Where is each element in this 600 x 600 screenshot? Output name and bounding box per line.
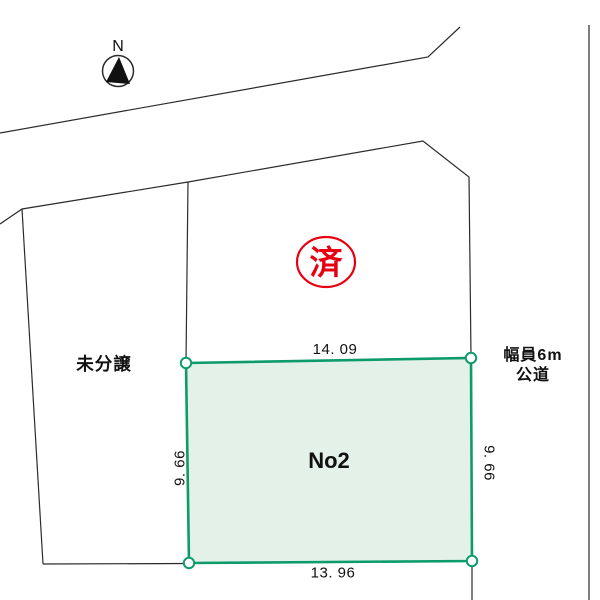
road-label: 幅員6m 公道 bbox=[503, 345, 562, 384]
plot-unsold-label: 未分譲 bbox=[76, 354, 132, 374]
corner-marker-top-left bbox=[181, 358, 191, 368]
north-label: N bbox=[112, 38, 124, 55]
plot-no2-label: No2 bbox=[308, 448, 350, 473]
corner-marker-top-right bbox=[466, 353, 476, 363]
dimension-right-label: 9. 66 bbox=[481, 445, 498, 481]
plot-divider-line bbox=[186, 182, 188, 362]
road-label-line2: 公道 bbox=[516, 365, 550, 384]
corner-marker-bottom-right bbox=[467, 556, 477, 566]
sold-stamp: 済 bbox=[297, 237, 355, 287]
corner-marker-bottom-left bbox=[184, 558, 194, 568]
dimension-left-label: 9. 66 bbox=[172, 450, 189, 486]
plat-map-canvas: N 未分譲 済 No2 14. 09 13. 96 9. 66 9. 66 幅員… bbox=[0, 0, 600, 600]
dimension-bottom-label: 13. 96 bbox=[311, 565, 356, 582]
unsold-plot-west-boundary bbox=[22, 209, 43, 564]
sold-stamp-label: 済 bbox=[310, 244, 344, 281]
road-label-line1: 幅員6m bbox=[503, 345, 562, 364]
dimension-top-label: 14. 09 bbox=[313, 341, 358, 358]
plat-map-drawing: N 未分譲 済 No2 14. 09 13. 96 9. 66 9. 66 幅員… bbox=[0, 0, 600, 600]
plots-top-boundary-line bbox=[0, 141, 471, 357]
north-arrow-icon: N bbox=[103, 38, 134, 87]
road-upper-edge-line bbox=[0, 27, 460, 133]
unsold-plot-south-boundary bbox=[43, 564, 190, 565]
